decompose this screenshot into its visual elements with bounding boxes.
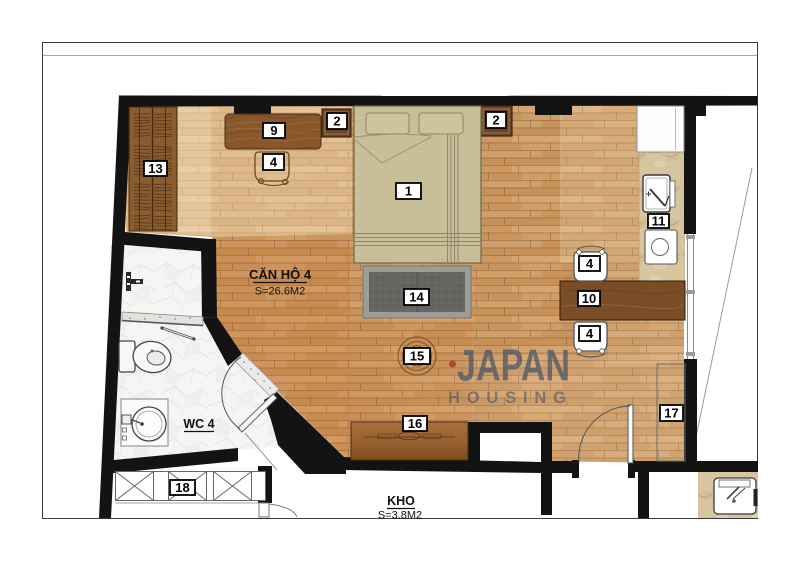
svg-text:10: 10 <box>582 291 596 306</box>
svg-text:4: 4 <box>586 326 594 341</box>
svg-text:CĂN HỘ 4: CĂN HỘ 4 <box>249 267 312 282</box>
svg-text:17: 17 <box>664 406 678 421</box>
svg-text:14: 14 <box>409 290 424 305</box>
svg-text:2: 2 <box>333 114 340 129</box>
svg-text:16: 16 <box>408 416 422 431</box>
svg-text:2: 2 <box>492 113 499 128</box>
svg-text:18: 18 <box>175 480 189 495</box>
svg-text:9: 9 <box>270 123 277 138</box>
svg-text:4: 4 <box>586 256 594 271</box>
svg-text:S=26.6M2: S=26.6M2 <box>255 286 305 298</box>
svg-text:S=3.8M2: S=3.8M2 <box>378 510 422 522</box>
svg-text:1: 1 <box>405 184 412 199</box>
svg-text:13: 13 <box>148 161 162 176</box>
svg-text:11: 11 <box>652 214 666 229</box>
svg-text:WC 4: WC 4 <box>183 417 214 431</box>
svg-text:15: 15 <box>410 349 424 364</box>
svg-text:JAPAN: JAPAN <box>457 342 570 391</box>
svg-text:KHO: KHO <box>387 494 415 508</box>
svg-text:4: 4 <box>270 155 278 170</box>
